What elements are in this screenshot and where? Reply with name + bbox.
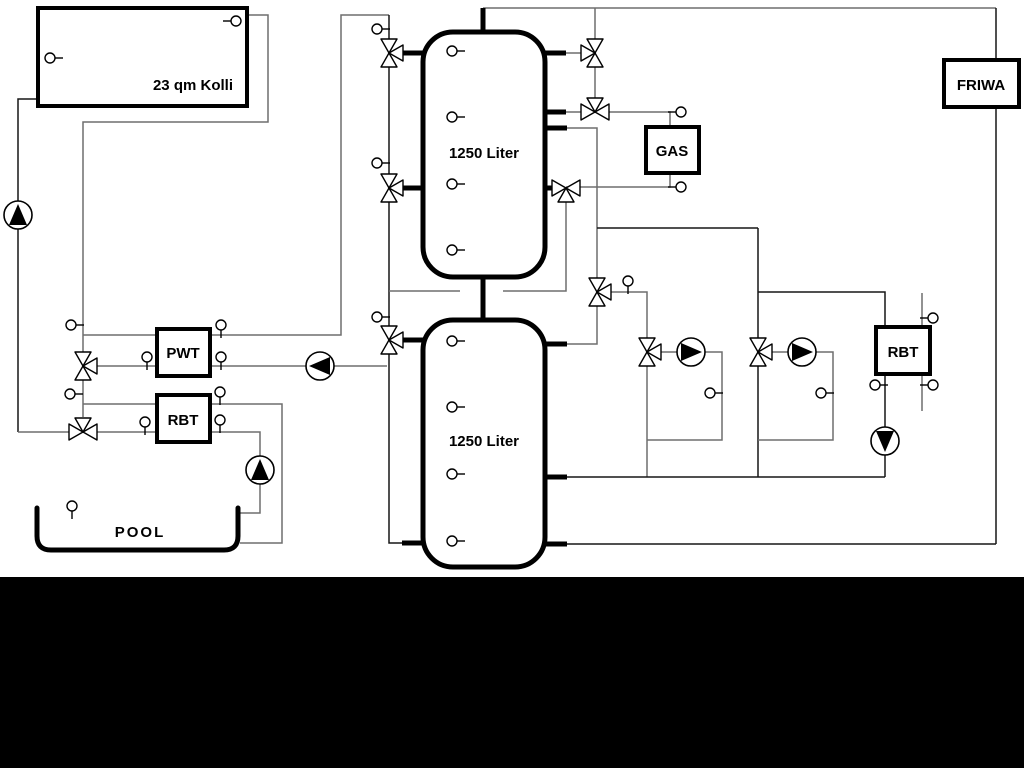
three-way-valve-icon bbox=[639, 338, 661, 366]
friwa-label: FRIWA bbox=[957, 77, 1005, 94]
gas-label: GAS bbox=[656, 143, 689, 160]
pipe bbox=[567, 128, 597, 278]
rbt-left-label: RBT bbox=[168, 412, 199, 429]
temperature-sensor-icon bbox=[372, 24, 390, 34]
schematic-canvas: 23 qm Kolli 1250 Liter 1250 Liter PWT RB… bbox=[0, 0, 1024, 768]
three-way-valve-icon bbox=[581, 98, 609, 120]
temperature-sensor-icon bbox=[215, 415, 225, 433]
temperature-sensor-icon bbox=[372, 312, 390, 322]
pipe bbox=[389, 15, 404, 543]
temperature-sensor-icon bbox=[65, 389, 83, 399]
pipe bbox=[609, 112, 670, 127]
temperature-sensor-icon bbox=[705, 388, 723, 398]
pipe bbox=[566, 173, 670, 187]
temperature-sensor-icon bbox=[215, 387, 225, 405]
pump-icon bbox=[246, 456, 274, 484]
three-way-valve-icon bbox=[75, 352, 97, 380]
three-way-valve-icon bbox=[552, 180, 580, 202]
three-way-valve-icon bbox=[581, 39, 603, 67]
three-way-valve-icon bbox=[750, 338, 772, 366]
rbt-right-label: RBT bbox=[888, 344, 919, 361]
temperature-sensor-icon bbox=[67, 501, 77, 519]
temperature-sensor-icon bbox=[216, 352, 226, 370]
temperature-sensor-icon bbox=[372, 158, 390, 168]
hydraulic-schematic: 23 qm Kolli 1250 Liter 1250 Liter PWT RB… bbox=[0, 0, 1024, 768]
collector-label: 23 qm Kolli bbox=[153, 77, 233, 94]
three-way-valve-icon bbox=[381, 174, 403, 202]
pwt-label: PWT bbox=[166, 345, 199, 362]
pump-icon bbox=[788, 338, 816, 366]
tank-bottom-label: 1250 Liter bbox=[449, 433, 519, 450]
temperature-sensor-icon bbox=[142, 352, 152, 370]
pump-icon bbox=[306, 352, 334, 380]
three-way-valve-icon bbox=[589, 278, 611, 306]
pipe bbox=[18, 99, 38, 432]
pump-icon bbox=[677, 338, 705, 366]
bottom-black-band bbox=[0, 577, 1024, 768]
pipe bbox=[611, 292, 647, 338]
three-way-valve-icon bbox=[381, 39, 403, 67]
temperature-sensor-icon bbox=[66, 320, 84, 330]
pool-label: POOL bbox=[115, 524, 166, 541]
three-way-valve-icon bbox=[69, 418, 97, 440]
temperature-sensor-icon bbox=[816, 388, 834, 398]
pipe bbox=[567, 306, 597, 344]
pump-icon bbox=[4, 201, 32, 229]
tank-top-label: 1250 Liter bbox=[449, 145, 519, 162]
pipe bbox=[18, 432, 260, 513]
pump-icon bbox=[871, 427, 899, 455]
three-way-valve-icon bbox=[381, 326, 403, 354]
pipe bbox=[758, 292, 885, 327]
